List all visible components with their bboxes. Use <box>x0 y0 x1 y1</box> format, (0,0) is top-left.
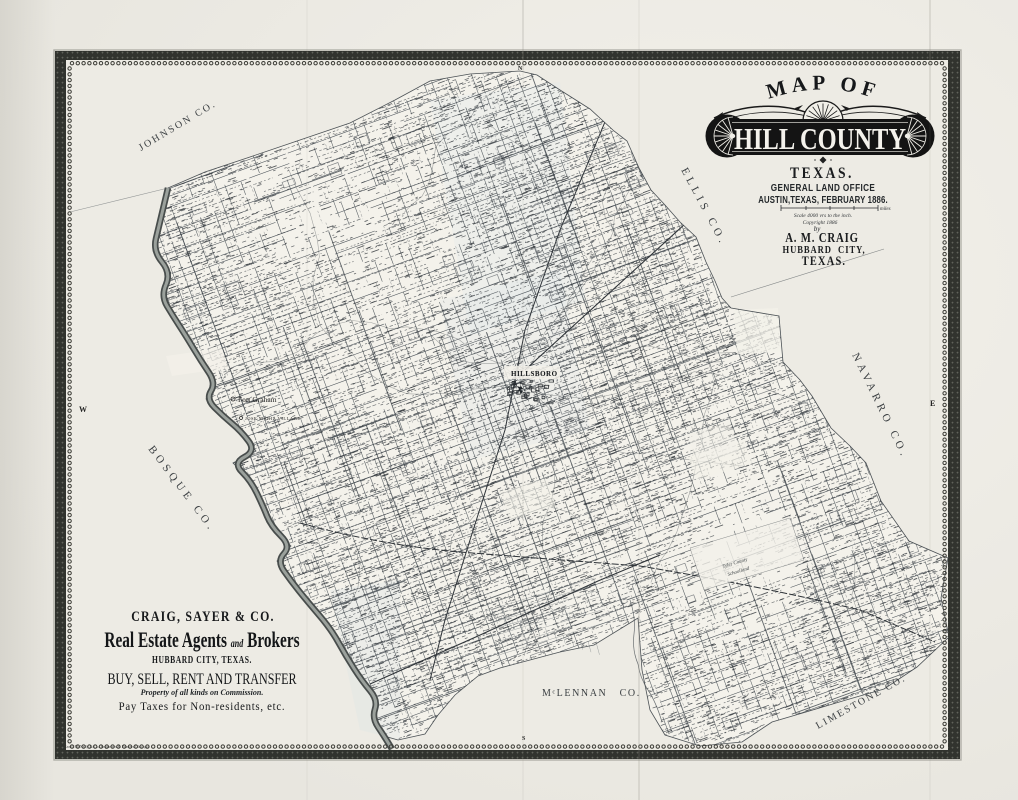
svg-text:E: E <box>930 399 935 408</box>
svg-text:Real Estate Agents and Brokers: Real Estate Agents and Brokers <box>104 628 299 652</box>
svg-text:A. M. CRAIG: A. M. CRAIG <box>785 230 859 245</box>
svg-text:AUSTIN,TEXAS, FEBRUARY 1886.: AUSTIN,TEXAS, FEBRUARY 1886. <box>758 194 888 205</box>
svg-text:N: N <box>518 66 523 72</box>
svg-text:JOSE MARIA VILLAGE: JOSE MARIA VILLAGE <box>245 416 301 421</box>
svg-text:TEXAS.: TEXAS. <box>802 254 846 268</box>
svg-text:W: W <box>79 405 87 414</box>
svg-text:Pay Taxes for Non-residents, e: Pay Taxes for Non-residents, etc. <box>119 701 286 714</box>
svg-text:TEXAS.: TEXAS. <box>790 165 854 182</box>
svg-text:HILLSBORO: HILLSBORO <box>511 370 558 378</box>
svg-text:miles: miles <box>880 207 891 212</box>
svg-text:Property of all kinds on Commi: Property of all kinds on Commission. <box>141 688 264 697</box>
svg-text:Scale 4000 vrs to the inch.: Scale 4000 vrs to the inch. <box>794 212 852 219</box>
svg-text:MᶜLENNAN CO.: MᶜLENNAN CO. <box>542 688 641 699</box>
svg-text:GENERAL LAND OFFICE: GENERAL LAND OFFICE <box>771 181 876 193</box>
svg-text:BUY, SELL, RENT AND TRANSFER: BUY, SELL, RENT AND TRANSFER <box>107 672 297 689</box>
svg-text:HUBBARD CITY, TEXAS.: HUBBARD CITY, TEXAS. <box>152 654 252 665</box>
svg-text:HILL COUNTY: HILL COUNTY <box>734 121 906 156</box>
svg-text:CRAIG, SAYER & CO.: CRAIG, SAYER & CO. <box>131 608 275 624</box>
svg-text:Fort Graham: Fort Graham <box>238 395 277 404</box>
